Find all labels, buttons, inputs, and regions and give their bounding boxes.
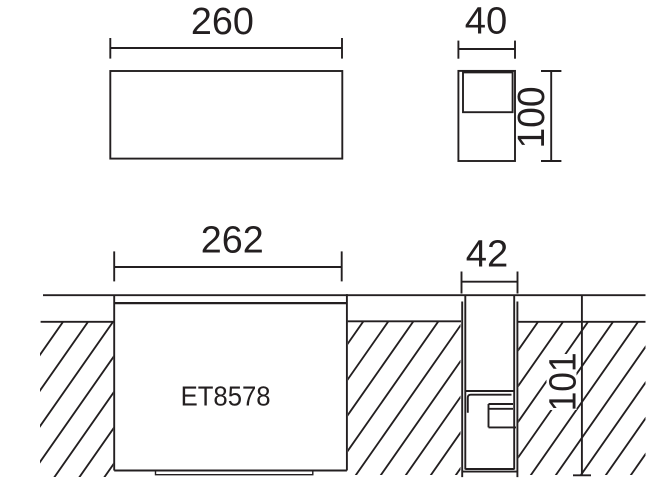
svg-text:262: 262 — [201, 220, 264, 262]
svg-text:40: 40 — [465, 1, 508, 43]
svg-text:101: 101 — [543, 352, 585, 411]
svg-text:260: 260 — [191, 1, 254, 43]
svg-text:100: 100 — [511, 87, 553, 149]
svg-text:42: 42 — [466, 234, 509, 276]
svg-text:ET8578: ET8578 — [181, 380, 271, 411]
